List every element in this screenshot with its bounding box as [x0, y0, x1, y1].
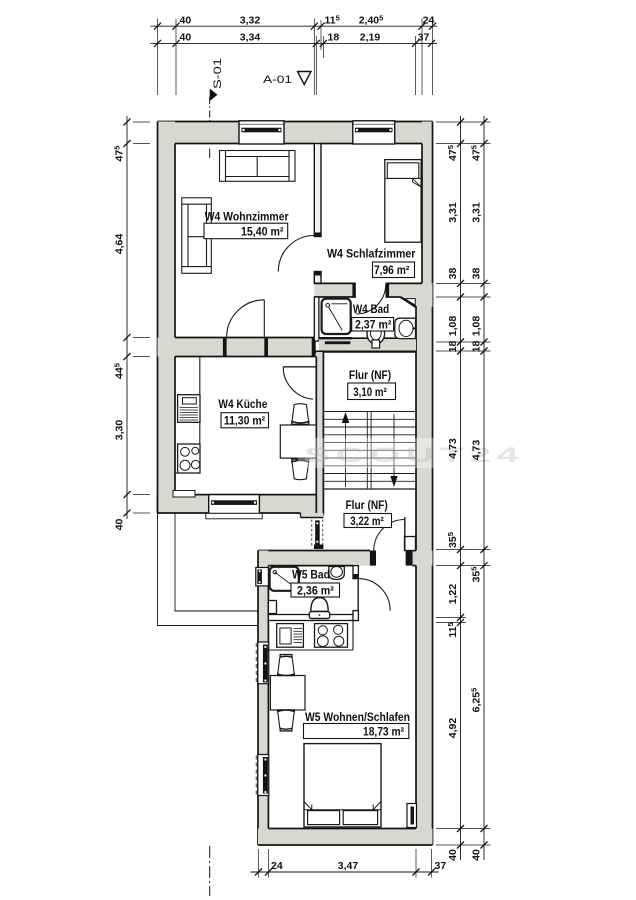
svg-text:3,34: 3,34: [240, 32, 261, 44]
svg-text:1,08: 1,08: [447, 316, 459, 337]
svg-text:4,73: 4,73: [471, 440, 483, 461]
svg-text:18,73 m²: 18,73 m²: [363, 724, 404, 738]
svg-text:A-01: A-01: [263, 74, 292, 86]
svg-text:S-01: S-01: [212, 58, 224, 89]
svg-text:37: 37: [435, 860, 447, 872]
svg-text:W4 Wohnzimmer: W4 Wohnzimmer: [205, 210, 289, 224]
svg-text:7,96 m²: 7,96 m²: [374, 263, 409, 277]
svg-text:40: 40: [180, 15, 192, 27]
svg-text:3,10 m²: 3,10 m²: [353, 385, 386, 399]
svg-text:11,30 m²: 11,30 m²: [224, 414, 265, 428]
svg-text:3,30: 3,30: [114, 420, 126, 441]
svg-text:2,37 m²: 2,37 m²: [355, 318, 391, 332]
svg-text:3,47: 3,47: [338, 860, 359, 872]
svg-text:SCOUT24: SCOUT24: [304, 444, 524, 467]
svg-text:24: 24: [271, 860, 283, 872]
svg-text:4,64: 4,64: [114, 234, 126, 255]
svg-text:40: 40: [447, 849, 459, 861]
svg-text:3,31: 3,31: [471, 202, 483, 223]
svg-text:40: 40: [114, 519, 126, 531]
svg-text:40: 40: [180, 32, 192, 44]
svg-text:4,73: 4,73: [447, 438, 459, 459]
svg-text:38: 38: [471, 268, 483, 280]
svg-text:4,92: 4,92: [447, 718, 459, 739]
svg-text:2,19: 2,19: [360, 32, 381, 44]
svg-text:W4 Schlafzimmer: W4 Schlafzimmer: [327, 247, 416, 261]
svg-text:18: 18: [328, 32, 340, 44]
svg-text:3,31: 3,31: [447, 202, 459, 223]
svg-text:24: 24: [423, 15, 435, 27]
svg-text:1,08: 1,08: [471, 316, 483, 337]
svg-text:1,22: 1,22: [447, 584, 459, 605]
svg-text:W4 Küche: W4 Küche: [218, 397, 267, 411]
svg-text:37: 37: [418, 32, 430, 44]
svg-text:W5 Wohnen/Schlafen: W5 Wohnen/Schlafen: [305, 710, 410, 724]
svg-text:3,22 m²: 3,22 m²: [350, 514, 383, 528]
svg-text:40: 40: [471, 849, 483, 861]
svg-text:3,32: 3,32: [240, 15, 261, 27]
svg-text:38: 38: [447, 268, 459, 280]
svg-text:15,40 m²: 15,40 m²: [241, 224, 283, 238]
svg-text:Flur (NF): Flur (NF): [349, 368, 391, 382]
svg-text:W4 Bad: W4 Bad: [353, 302, 389, 316]
svg-text:2,36 m²: 2,36 m²: [297, 583, 334, 597]
svg-text:Flur (NF): Flur (NF): [346, 498, 388, 512]
svg-text:W5 Bad: W5 Bad: [292, 568, 330, 582]
